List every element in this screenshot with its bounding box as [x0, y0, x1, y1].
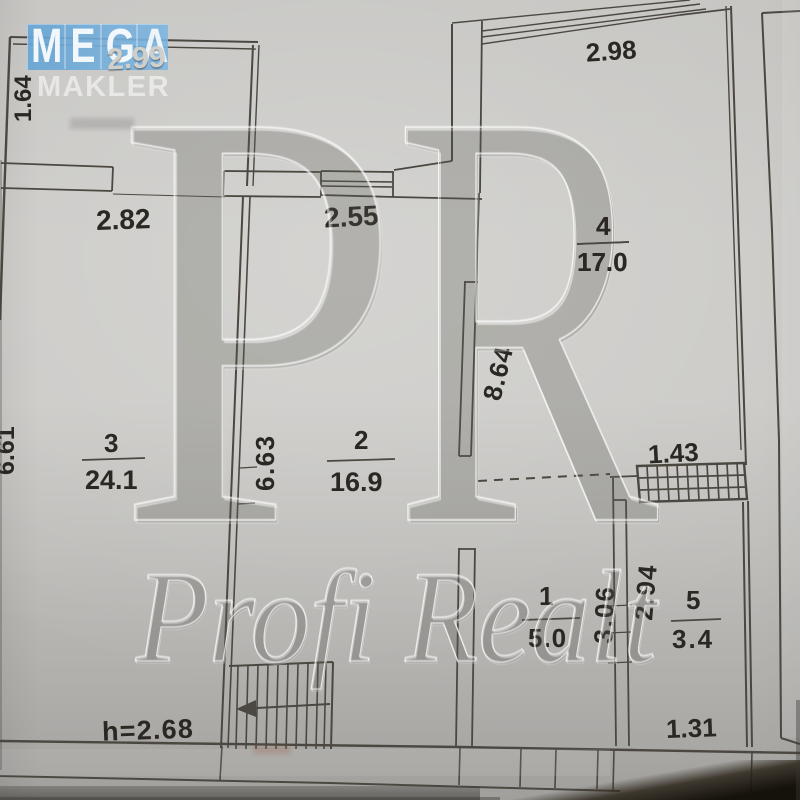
svg-text:17.0: 17.0: [577, 247, 628, 277]
svg-text:4: 4: [596, 211, 611, 241]
